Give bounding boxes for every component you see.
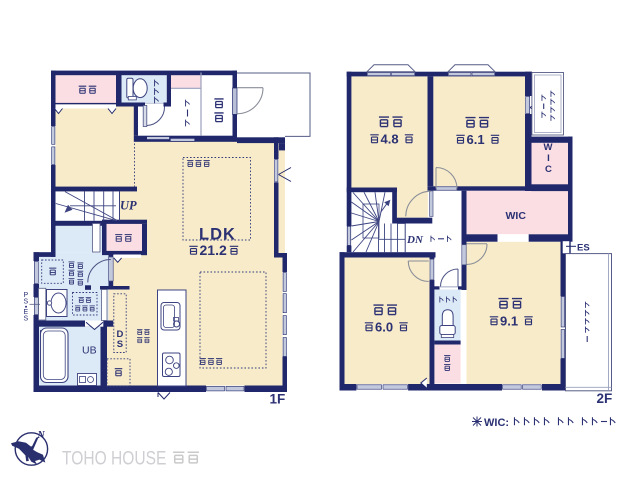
svg-text:S: S bbox=[24, 299, 29, 306]
svg-text:TOHO HOUSE: TOHO HOUSE bbox=[62, 447, 166, 469]
svg-text:S: S bbox=[117, 339, 123, 350]
svg-text:21.2: 21.2 bbox=[200, 242, 227, 258]
svg-text:I: I bbox=[547, 153, 550, 164]
svg-text:UP: UP bbox=[120, 199, 137, 213]
svg-text:DN: DN bbox=[406, 234, 424, 246]
svg-text:C: C bbox=[545, 164, 552, 175]
svg-text:LDK: LDK bbox=[199, 226, 236, 244]
svg-text:W: W bbox=[544, 142, 553, 153]
svg-text:S: S bbox=[24, 316, 29, 323]
svg-text:4.8: 4.8 bbox=[381, 132, 399, 147]
svg-text:N: N bbox=[37, 430, 46, 441]
svg-text:UB: UB bbox=[82, 345, 97, 357]
svg-text:1F: 1F bbox=[270, 392, 286, 407]
svg-text:9.1: 9.1 bbox=[500, 314, 518, 329]
svg-text:2F: 2F bbox=[597, 391, 613, 406]
svg-text:ES: ES bbox=[577, 243, 590, 254]
svg-text:6.1: 6.1 bbox=[467, 132, 485, 147]
svg-text:WIC: WIC bbox=[506, 210, 527, 222]
svg-text:WIC:: WIC: bbox=[484, 417, 509, 429]
svg-text:6.0: 6.0 bbox=[375, 320, 393, 335]
